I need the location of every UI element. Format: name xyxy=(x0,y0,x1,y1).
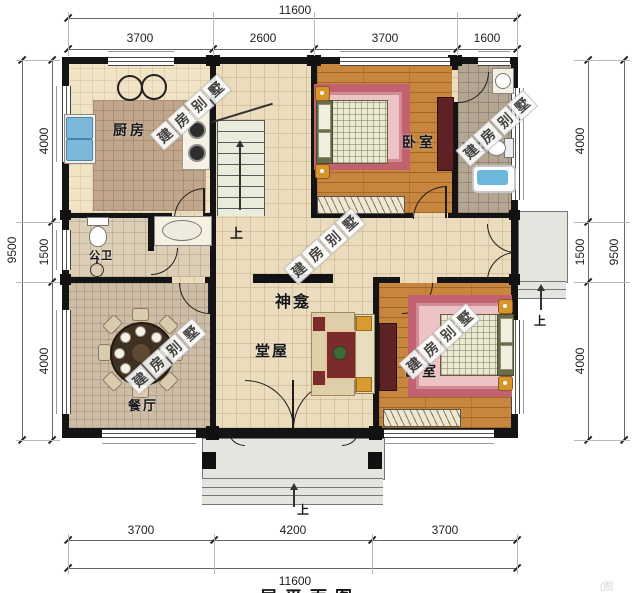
window xyxy=(62,310,71,414)
place-setting xyxy=(135,326,146,337)
column-block xyxy=(60,274,71,285)
window-sill xyxy=(102,443,196,444)
column-block xyxy=(448,55,462,66)
wall-h2 xyxy=(373,277,400,283)
bed-pillow xyxy=(318,132,331,158)
toilet-tank xyxy=(87,217,109,226)
label-kitchen: 厨房 xyxy=(106,120,154,140)
kitchen-sink-basin xyxy=(66,117,93,139)
dim-ext xyxy=(213,12,214,56)
bed xyxy=(330,100,388,164)
tv-cabinet xyxy=(379,323,397,391)
front-porch-platform xyxy=(202,438,385,480)
entry-direction-arrow xyxy=(293,489,295,507)
armchair xyxy=(312,316,326,332)
place-setting xyxy=(114,348,125,359)
column-block xyxy=(369,426,382,440)
label-hall: 堂屋 xyxy=(247,340,297,361)
dim-ext xyxy=(16,282,60,283)
armchair xyxy=(312,370,326,386)
side-arrow-head xyxy=(537,284,545,291)
dim-line xyxy=(52,60,53,440)
dim-bottom-seg: 3700 xyxy=(106,523,176,537)
column-block xyxy=(206,426,219,440)
dim-right-seg: 4000 xyxy=(573,121,587,161)
dim-left-seg: 1500 xyxy=(37,232,51,272)
dim-line xyxy=(588,60,589,440)
dim-right-total: 9500 xyxy=(607,237,621,267)
dim-ext xyxy=(16,222,60,223)
window xyxy=(62,230,71,270)
table-flowers xyxy=(333,346,347,360)
dim-ext xyxy=(16,440,60,441)
dim-ext xyxy=(574,282,630,283)
dim-top-seg: 2600 xyxy=(228,31,298,45)
dim-ext xyxy=(574,60,630,61)
wall-h1 xyxy=(448,213,518,218)
dim-ext xyxy=(16,60,60,61)
side-porch-platform xyxy=(518,211,568,283)
dim-ext xyxy=(457,12,458,56)
window-sill xyxy=(523,320,524,414)
stove-burner xyxy=(188,144,206,162)
staircase xyxy=(217,120,265,216)
kitchen-sink-basin xyxy=(66,139,93,161)
place-setting xyxy=(151,332,162,343)
door-leaf xyxy=(208,283,210,313)
window-sill xyxy=(56,86,57,162)
wardrobe xyxy=(383,409,461,427)
place-setting xyxy=(120,332,131,343)
column-block xyxy=(60,210,71,220)
dim-right-seg: 1500 xyxy=(573,232,587,272)
dim-top-seg: 3700 xyxy=(105,31,175,45)
stair-up-label: 上 xyxy=(230,223,243,242)
kitchen-pot xyxy=(141,74,167,100)
dim-line xyxy=(68,18,518,19)
dim-ext xyxy=(517,12,518,56)
window-sill xyxy=(108,51,174,52)
window xyxy=(102,429,196,438)
dim-ext xyxy=(314,12,315,56)
corner-text-fragment: (图 xyxy=(600,578,613,593)
dim-top-seg: 3700 xyxy=(350,31,420,45)
label-public-bath: 公卫 xyxy=(84,247,118,263)
dim-ext xyxy=(517,534,518,574)
toilet-bowl xyxy=(89,226,107,247)
dim-right-seg: 4000 xyxy=(573,341,587,381)
window xyxy=(340,57,450,66)
window-sill xyxy=(56,230,57,270)
column-block xyxy=(509,210,520,220)
wall-kitchen-stairs xyxy=(210,64,216,428)
column-block xyxy=(307,55,321,66)
dim-left-seg: 4000 xyxy=(37,341,51,381)
dim-ext xyxy=(68,12,69,56)
window xyxy=(108,57,174,66)
entry-door-center xyxy=(292,380,294,428)
porch-column xyxy=(202,452,216,469)
window-sill xyxy=(478,51,510,52)
window-sill xyxy=(384,443,494,444)
window xyxy=(478,57,510,66)
front-porch-up-label: 上 xyxy=(297,501,309,518)
dim-top-seg: 1600 xyxy=(452,31,522,45)
nightstand-lamp xyxy=(315,86,330,101)
dim-left-seg: 4000 xyxy=(37,121,51,161)
label-bedroom-top: 卧室 xyxy=(394,132,444,152)
window-sill xyxy=(340,51,450,52)
dim-line xyxy=(68,540,518,541)
floor-drain xyxy=(90,263,104,277)
porch-column xyxy=(368,452,382,469)
dim-bottom-seg: 3700 xyxy=(410,523,480,537)
bed-pillow xyxy=(500,345,513,370)
dim-ext xyxy=(574,222,630,223)
stair-arrow-head xyxy=(236,140,244,147)
stair-direction-arrow xyxy=(239,146,241,210)
nightstand-lamp xyxy=(315,164,330,179)
dim-left-total: 9500 xyxy=(5,235,19,265)
dim-ext xyxy=(68,534,69,574)
column-block xyxy=(206,55,220,66)
wardrobe xyxy=(317,196,405,214)
sofa-cushion-gold xyxy=(356,316,372,331)
bed-pillow xyxy=(500,318,513,343)
dim-line xyxy=(68,49,518,50)
dim-ext xyxy=(372,534,373,574)
door-leaf xyxy=(203,188,205,218)
dim-ext xyxy=(214,534,215,574)
door-leaf xyxy=(445,186,447,218)
plan-title-partial: 一层平面图 xyxy=(235,583,385,593)
nightstand-lamp xyxy=(498,376,513,391)
window-sill xyxy=(56,310,57,414)
sofa-cushion-gold xyxy=(356,377,372,392)
vanity-basin xyxy=(162,220,202,241)
floor-plan-canvas: 上 上 xyxy=(0,0,639,593)
wall-h2 xyxy=(62,277,172,283)
dim-line xyxy=(624,60,625,440)
side-direction-arrow xyxy=(540,290,542,310)
dim-top-total: 11600 xyxy=(250,3,340,17)
entry-arrow-head xyxy=(290,483,298,490)
side-porch-up-label: 上 xyxy=(534,312,546,329)
bathtub-water xyxy=(477,170,508,185)
bed-pillow xyxy=(318,104,331,130)
dim-line xyxy=(68,568,518,569)
nightstand-lamp xyxy=(498,299,513,314)
dining-chair xyxy=(132,308,149,321)
dim-line xyxy=(22,60,23,440)
label-dining: 餐厅 xyxy=(120,395,166,414)
kitchen-pot xyxy=(117,75,143,101)
dim-bottom-seg: 4200 xyxy=(258,523,328,537)
label-shrine: 神龛 xyxy=(268,288,318,312)
dim-ext xyxy=(574,440,630,441)
window xyxy=(384,429,494,438)
bath-basin xyxy=(495,73,511,89)
